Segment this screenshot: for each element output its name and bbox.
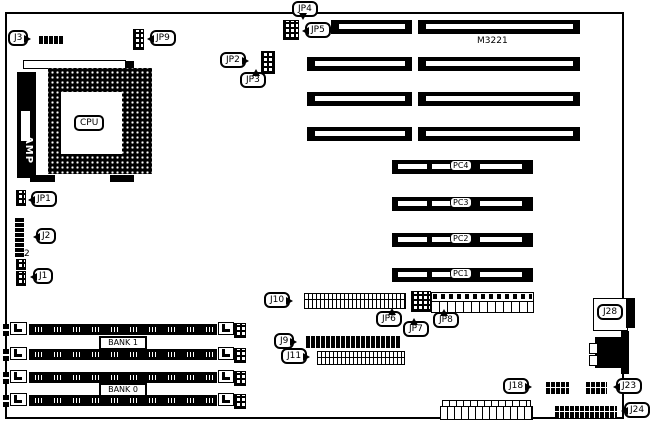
jp2-jp3-jumper <box>261 51 275 74</box>
j2-connector <box>15 217 24 257</box>
j23-connector <box>586 382 607 394</box>
simm-slot-3 <box>29 372 217 383</box>
j1-callout: J1 <box>33 268 53 284</box>
jp6-callout: JP6 <box>376 311 402 327</box>
slot-stripe <box>432 272 452 277</box>
simm-latch <box>218 393 234 406</box>
j2-callout: J2 <box>36 228 56 244</box>
pc2-slot-label: PC2 <box>450 233 472 244</box>
keyboard-din-edge <box>621 331 629 374</box>
amp-socket-lever: AMP <box>17 72 36 178</box>
j23-callout: J23 <box>616 378 642 394</box>
slot-stripe <box>480 272 522 277</box>
j2-pin-number: 2 <box>24 249 30 259</box>
j3-connector <box>39 36 63 44</box>
simm-clip <box>3 349 9 361</box>
jp1-callout: JP1 <box>31 191 57 207</box>
pc2-slot: PC2 <box>392 233 533 247</box>
isa-slot-2-right-segment <box>418 57 580 71</box>
isa-slot-1-left-segment <box>331 20 412 34</box>
simm-clip <box>3 372 9 384</box>
isa-slot-3-right-segment <box>418 92 580 106</box>
j11-callout: J11 <box>281 348 307 364</box>
j28-edge-block <box>626 298 635 328</box>
pc1-slot: PC1 <box>392 268 533 282</box>
jp6-jp7-jumper <box>411 291 431 312</box>
j3-callout: J3 <box>8 30 28 46</box>
jp9-callout: JP9 <box>150 30 176 46</box>
j28-callout: J28 <box>597 304 623 320</box>
slot-stripe <box>480 164 522 169</box>
simm-clip <box>234 394 246 409</box>
pc4-slot-label: PC4 <box>450 160 472 171</box>
socket-foot-right <box>110 175 134 182</box>
jp8-callout: JP8 <box>433 312 459 328</box>
bank1-label: BANK 1 <box>99 336 147 350</box>
j11-connector <box>317 351 405 365</box>
simm-latch <box>218 370 234 383</box>
simm-slot-1 <box>29 324 217 335</box>
simm-latch <box>10 347 27 360</box>
isa-slot-3-left-segment <box>307 92 412 106</box>
jp7-callout: JP7 <box>403 321 429 337</box>
motherboard-diagram: J3 JP9 CPU AMP JP4 JP5 JP2 JP3 M3221 PC4… <box>0 0 658 427</box>
jp4-jp5-jumper <box>283 20 299 40</box>
power-connector-pins <box>433 294 532 299</box>
slot-stripe <box>432 237 452 242</box>
j9-connector <box>306 336 401 348</box>
keyboard-din-connector <box>595 337 622 368</box>
jp3-callout: JP3 <box>240 72 266 88</box>
din-mount-tab <box>589 355 598 366</box>
j18-callout: J18 <box>503 378 529 394</box>
isa-slot-4-left-segment <box>307 127 412 141</box>
slot-stripe <box>480 237 522 242</box>
jp2-callout: JP2 <box>220 52 246 68</box>
simm-latch <box>10 322 27 335</box>
j9-callout: J9 <box>274 333 294 349</box>
simm-latch <box>218 347 234 360</box>
slot-stripe <box>398 237 427 242</box>
pc3-slot: PC3 <box>392 197 533 211</box>
simm-clip <box>234 323 246 338</box>
bottom-terminal-connector <box>440 400 533 420</box>
j1-jumper <box>16 271 26 286</box>
simm-latch <box>10 370 27 383</box>
socket-foot-left <box>30 175 55 182</box>
slot-stripe <box>480 201 522 206</box>
board-model-text: M3221 <box>477 36 508 46</box>
simm-clip <box>3 395 9 407</box>
simm-slot-2 <box>29 349 217 360</box>
cpu-label: CPU <box>74 115 104 131</box>
simm-latch <box>10 393 27 406</box>
slot-stripe <box>432 164 452 169</box>
j18-connector <box>546 382 569 394</box>
j24-connector <box>555 406 617 418</box>
jp4-callout: JP4 <box>292 1 318 17</box>
slot-stripe <box>398 272 427 277</box>
isa-slot-2-left-segment <box>307 57 412 71</box>
j10-callout: J10 <box>264 292 290 308</box>
pc1-slot-label: PC1 <box>450 268 472 279</box>
amp-maker-text: AMP <box>20 136 34 164</box>
slot-stripe <box>398 201 427 206</box>
simm-clip <box>234 371 246 386</box>
pc3-slot-label: PC3 <box>450 197 472 208</box>
bank0-label: BANK 0 <box>99 383 147 397</box>
slot-stripe <box>432 201 452 206</box>
simm-clip <box>3 324 9 336</box>
isa-slot-4-right-segment <box>418 127 580 141</box>
din-mount-tab <box>589 343 598 354</box>
isa-slot-1-right-segment <box>418 20 580 34</box>
simm-clip <box>234 348 246 363</box>
slot-stripe <box>398 164 427 169</box>
j2-end-block <box>16 259 26 270</box>
terminal-cell-row <box>440 406 533 420</box>
jp5-callout: JP5 <box>305 22 331 38</box>
simm-latch <box>218 322 234 335</box>
pc4-slot: PC4 <box>392 160 533 174</box>
j24-callout: J24 <box>624 402 650 418</box>
